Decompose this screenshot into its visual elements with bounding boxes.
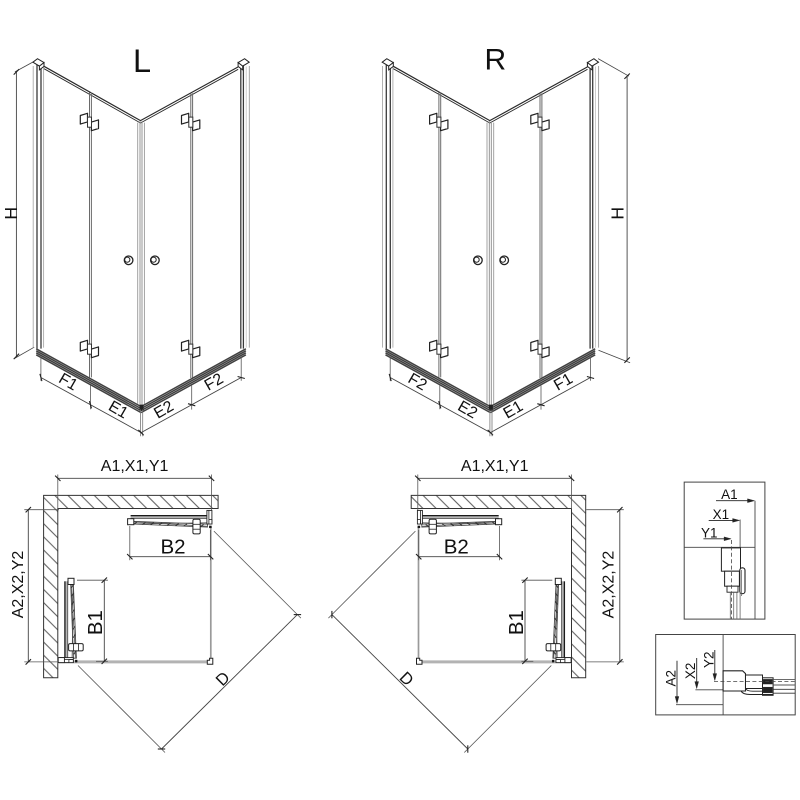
svg-text:B1: B1 [505, 610, 528, 635]
svg-text:A1,X1,Y1: A1,X1,Y1 [461, 458, 529, 475]
svg-text:B2: B2 [444, 536, 469, 559]
svg-text:L: L [133, 43, 151, 79]
svg-text:B2: B2 [160, 536, 185, 559]
svg-text:X1: X1 [713, 507, 730, 522]
svg-text:A2,X2,Y2: A2,X2,Y2 [601, 551, 618, 619]
svg-text:Y1: Y1 [701, 525, 718, 540]
svg-text:A2: A2 [663, 670, 678, 687]
svg-text:A1: A1 [721, 487, 738, 502]
svg-text:B1: B1 [84, 610, 107, 635]
svg-text:X2: X2 [683, 663, 698, 680]
svg-text:Y2: Y2 [701, 652, 716, 669]
svg-text:R: R [484, 44, 506, 77]
svg-text:A2,X2,Y2: A2,X2,Y2 [10, 551, 27, 619]
svg-text:H: H [608, 207, 628, 220]
svg-text:H: H [1, 207, 21, 220]
svg-text:A1,X1,Y1: A1,X1,Y1 [101, 458, 169, 475]
